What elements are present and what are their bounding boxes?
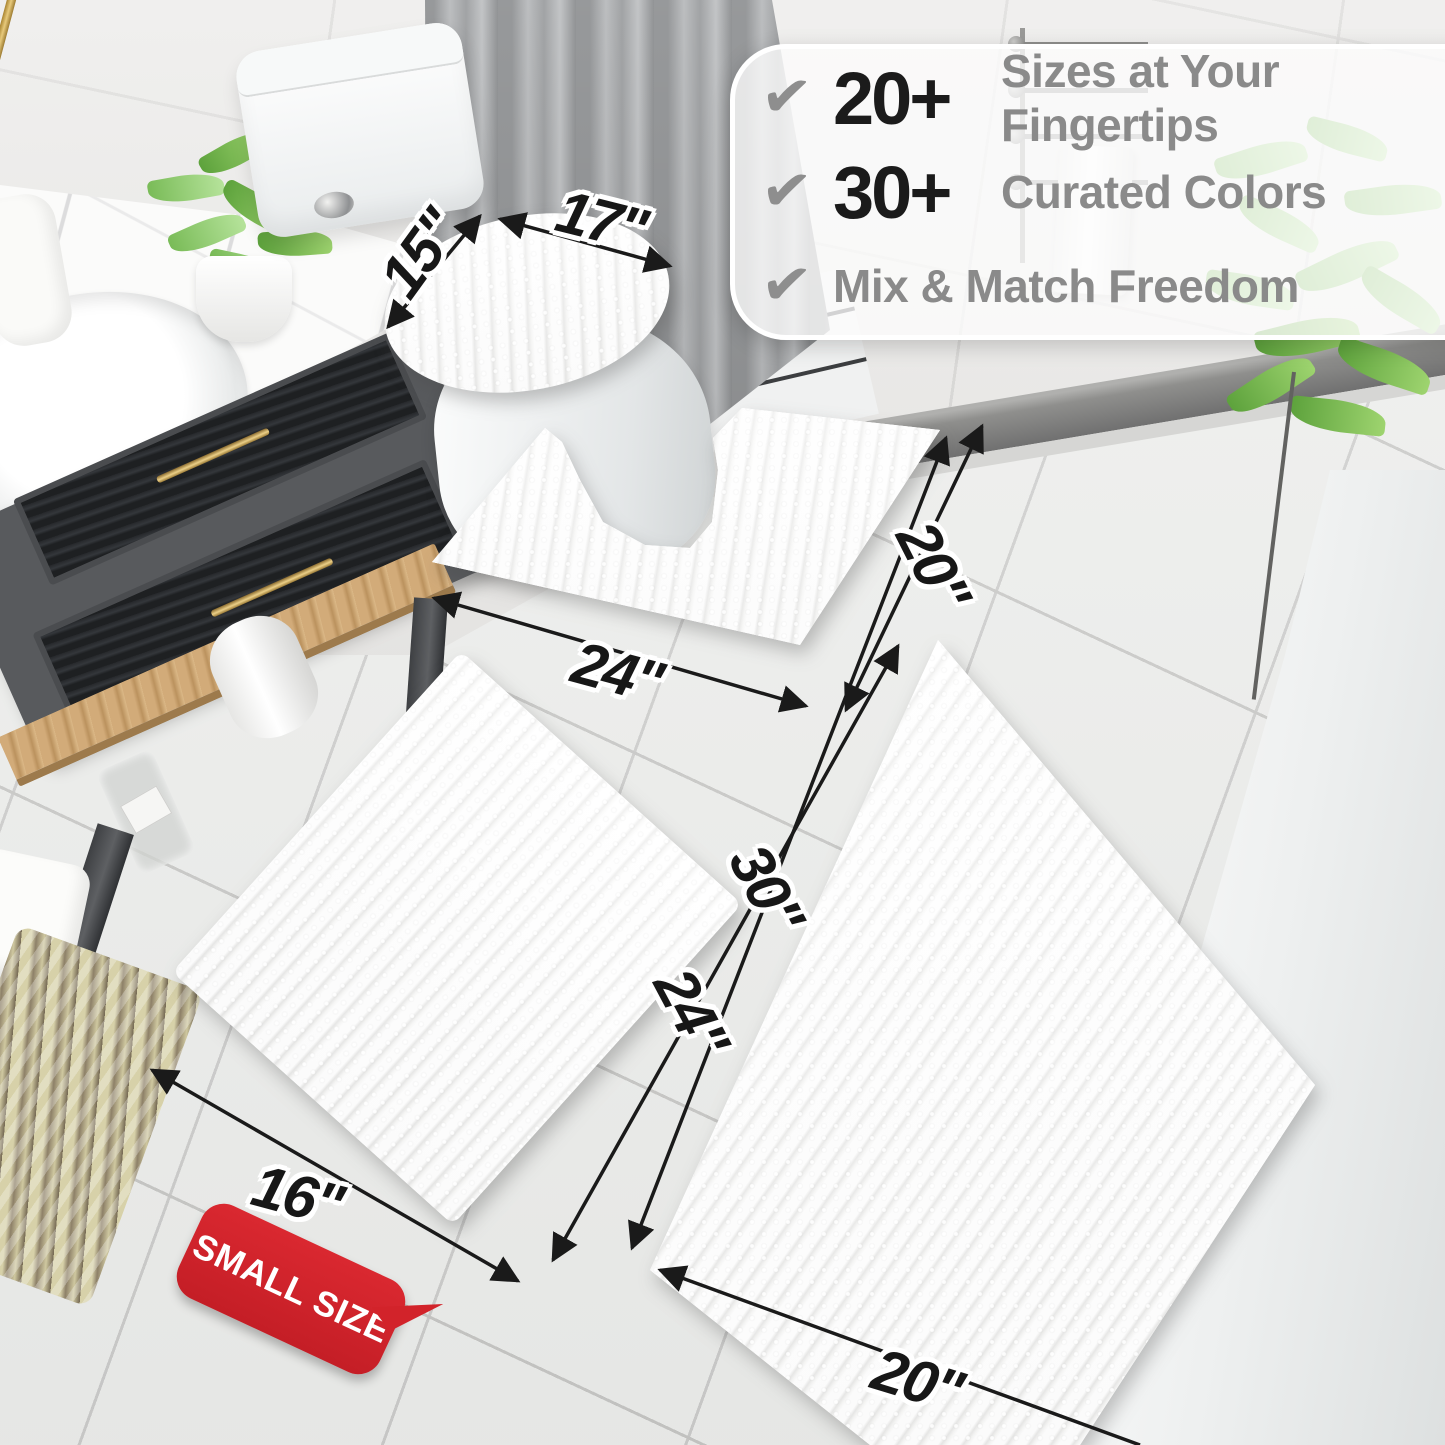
- feature-label: Curated Colors: [1001, 165, 1326, 219]
- product-photo-bathroom-rug-set: 17" 15" 24" 20" 24" 30" 16" 20" ✔ 20+ Si…: [0, 0, 1445, 1445]
- leaf: [1289, 395, 1388, 437]
- bottle-label: [120, 785, 172, 834]
- checkmark-icon: ✔: [758, 247, 837, 324]
- feature-callout-box: ✔ 20+ Sizes at Your Fingertips ✔ 30+ Cur…: [730, 44, 1445, 340]
- large-bath-rug: [640, 630, 1330, 1445]
- feature-row-colors: ✔ 30+ Curated Colors: [761, 145, 1445, 239]
- feature-count: 30+: [833, 150, 1001, 235]
- feature-row-mix-match: ✔ Mix & Match Freedom: [761, 239, 1445, 333]
- toilet-tank: [233, 19, 488, 240]
- checkmark-icon: ✔: [758, 59, 837, 136]
- feature-label: Mix & Match Freedom: [833, 259, 1299, 313]
- leaf: [1332, 336, 1435, 397]
- checkmark-icon: ✔: [758, 153, 837, 230]
- leaf: [146, 169, 225, 208]
- plant-pot: [196, 256, 292, 342]
- feature-row-sizes: ✔ 20+ Sizes at Your Fingertips: [761, 51, 1445, 145]
- feature-count: 20+: [833, 56, 1001, 141]
- feature-label: Sizes at Your Fingertips: [1001, 44, 1445, 152]
